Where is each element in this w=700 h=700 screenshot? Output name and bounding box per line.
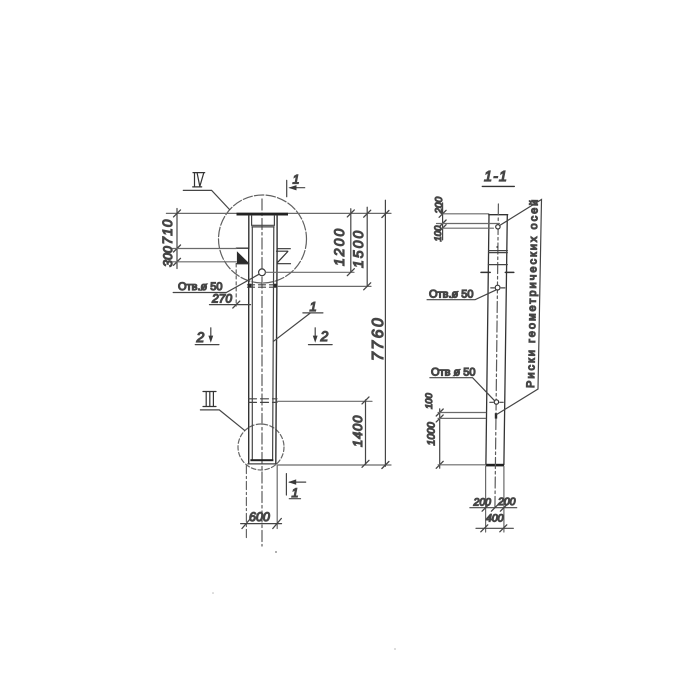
svg-text:100: 100 — [424, 392, 435, 409]
svg-text:1-1: 1-1 — [484, 169, 508, 185]
svg-text:200: 200 — [434, 196, 445, 214]
svg-text:1400: 1400 — [350, 415, 365, 447]
svg-text:400: 400 — [486, 513, 504, 525]
svg-text:600: 600 — [249, 510, 270, 524]
svg-text:710: 710 — [160, 218, 175, 244]
svg-text:200: 200 — [473, 497, 492, 509]
svg-text:270: 270 — [211, 292, 232, 306]
svg-text:1200: 1200 — [331, 227, 347, 266]
svg-text:300: 300 — [161, 246, 175, 267]
svg-text:1: 1 — [292, 486, 299, 500]
svg-text:7760: 7760 — [370, 316, 387, 361]
svg-text:1000: 1000 — [426, 422, 438, 446]
svg-text:Отв ø 50: Отв ø 50 — [431, 367, 476, 379]
svg-text:100: 100 — [433, 225, 444, 242]
svg-text:Отв.ø 50: Отв.ø 50 — [429, 289, 474, 301]
svg-text:200: 200 — [497, 496, 516, 508]
svg-text:1500: 1500 — [350, 229, 366, 268]
svg-text:2: 2 — [320, 328, 329, 344]
svg-text:1: 1 — [293, 173, 300, 187]
svg-text:1: 1 — [310, 299, 317, 314]
svg-text:Отв.ø 50: Отв.ø 50 — [178, 281, 223, 293]
svg-text:2: 2 — [196, 329, 205, 345]
